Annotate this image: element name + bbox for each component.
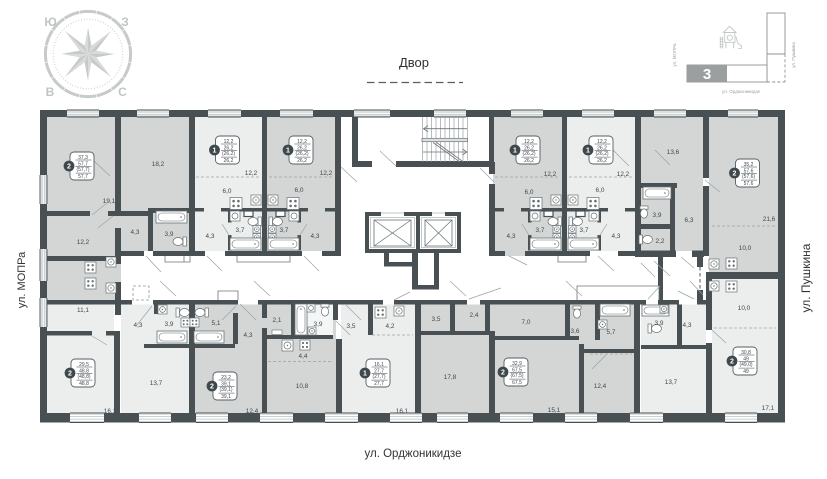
svg-text:(27,7): (27,7) bbox=[372, 374, 385, 380]
svg-text:12,4: 12,4 bbox=[246, 408, 259, 415]
svg-text:12,2: 12,2 bbox=[320, 170, 333, 177]
svg-text:4,3: 4,3 bbox=[244, 332, 253, 339]
svg-text:(67,5): (67,5) bbox=[510, 373, 523, 379]
svg-text:10,8: 10,8 bbox=[296, 383, 309, 390]
svg-text:17,1: 17,1 bbox=[762, 405, 775, 412]
svg-text:6,0: 6,0 bbox=[223, 188, 232, 195]
svg-text:13,6: 13,6 bbox=[667, 149, 680, 156]
svg-text:Ю: Ю bbox=[44, 15, 56, 29]
svg-text:10,0: 10,0 bbox=[739, 245, 752, 252]
svg-text:3,7: 3,7 bbox=[280, 227, 289, 234]
svg-text:4,3: 4,3 bbox=[311, 233, 320, 240]
svg-text:10,0: 10,0 bbox=[738, 305, 751, 312]
svg-text:1: 1 bbox=[286, 147, 290, 154]
svg-text:2: 2 bbox=[501, 369, 505, 376]
svg-text:13,7: 13,7 bbox=[665, 379, 678, 386]
svg-text:(26,2): (26,2) bbox=[595, 151, 608, 157]
svg-text:3: 3 bbox=[703, 66, 711, 83]
svg-text:3,9: 3,9 bbox=[165, 321, 174, 328]
svg-text:12,2: 12,2 bbox=[245, 170, 258, 177]
svg-text:2: 2 bbox=[733, 170, 737, 177]
svg-text:ул. МОПРа: ул. МОПРа bbox=[672, 43, 677, 67]
svg-text:4,3: 4,3 bbox=[507, 233, 516, 240]
svg-text:16,1: 16,1 bbox=[396, 408, 409, 415]
svg-text:26,2: 26,2 bbox=[224, 158, 234, 164]
svg-text:3,7: 3,7 bbox=[580, 227, 589, 234]
svg-text:(26,2): (26,2) bbox=[222, 151, 235, 157]
svg-text:ул. Орджоникидзе: ул. Орджоникидзе bbox=[722, 89, 760, 94]
svg-text:26,2: 26,2 bbox=[297, 158, 307, 164]
svg-text:3,9: 3,9 bbox=[655, 320, 664, 327]
svg-text:6,0: 6,0 bbox=[596, 187, 605, 194]
svg-text:2,1: 2,1 bbox=[273, 317, 282, 324]
svg-text:3,5: 3,5 bbox=[347, 323, 356, 330]
svg-text:3,5: 3,5 bbox=[432, 316, 441, 323]
svg-text:39,1: 39,1 bbox=[221, 394, 231, 400]
svg-text:6,3: 6,3 bbox=[685, 217, 694, 224]
svg-text:5,7: 5,7 bbox=[607, 329, 616, 336]
svg-text:(49,0): (49,0) bbox=[739, 362, 752, 368]
svg-text:2,4: 2,4 bbox=[470, 312, 479, 319]
svg-text:Двор: Двор bbox=[399, 55, 429, 70]
svg-text:(57,7): (57,7) bbox=[76, 167, 89, 173]
svg-text:4,3: 4,3 bbox=[134, 322, 143, 329]
svg-text:13,7: 13,7 bbox=[150, 380, 163, 387]
svg-text:6,0: 6,0 bbox=[525, 189, 534, 196]
svg-text:2,2: 2,2 bbox=[656, 238, 665, 245]
svg-text:1: 1 bbox=[363, 370, 367, 377]
svg-text:1: 1 bbox=[586, 147, 590, 154]
svg-text:3,7: 3,7 bbox=[236, 227, 245, 234]
svg-text:4,3: 4,3 bbox=[131, 229, 140, 236]
svg-text:18,2: 18,2 bbox=[152, 161, 165, 168]
svg-text:12,4: 12,4 bbox=[594, 383, 607, 390]
svg-text:С: С bbox=[118, 85, 127, 99]
svg-text:21,6: 21,6 bbox=[763, 216, 776, 223]
svg-text:11,1: 11,1 bbox=[77, 307, 89, 314]
svg-text:7,0: 7,0 bbox=[522, 319, 531, 326]
svg-text:27,7: 27,7 bbox=[374, 381, 384, 387]
svg-text:4,3: 4,3 bbox=[612, 233, 621, 240]
svg-text:2: 2 bbox=[730, 358, 734, 365]
svg-text:4,4: 4,4 bbox=[299, 353, 308, 360]
svg-text:26,2: 26,2 bbox=[597, 158, 607, 164]
svg-text:З: З bbox=[121, 15, 129, 29]
svg-text:3,9: 3,9 bbox=[165, 231, 174, 238]
svg-text:6,0: 6,0 bbox=[295, 187, 304, 194]
svg-text:2: 2 bbox=[67, 163, 71, 170]
svg-text:16,1: 16,1 bbox=[104, 408, 117, 415]
svg-text:57,7: 57,7 bbox=[78, 174, 88, 180]
svg-text:12,2: 12,2 bbox=[77, 239, 90, 246]
svg-text:(39,1): (39,1) bbox=[219, 387, 232, 393]
svg-text:15,1: 15,1 bbox=[548, 407, 561, 414]
svg-text:57,6: 57,6 bbox=[744, 181, 754, 187]
svg-text:2: 2 bbox=[210, 383, 214, 390]
svg-text:ул. Пушкина: ул. Пушкина bbox=[791, 42, 796, 68]
svg-text:В: В bbox=[46, 85, 55, 99]
svg-text:1: 1 bbox=[213, 147, 217, 154]
svg-text:(26,2): (26,2) bbox=[522, 151, 535, 157]
svg-text:12,2: 12,2 bbox=[617, 171, 630, 178]
svg-text:17,8: 17,8 bbox=[444, 374, 457, 381]
svg-text:3,9: 3,9 bbox=[653, 212, 662, 219]
svg-text:3,7: 3,7 bbox=[536, 227, 545, 234]
svg-text:(26,2): (26,2) bbox=[295, 151, 308, 157]
svg-text:4,3: 4,3 bbox=[206, 233, 215, 240]
svg-text:(48,8): (48,8) bbox=[77, 374, 90, 380]
svg-text:1: 1 bbox=[513, 147, 517, 154]
svg-text:4,3: 4,3 bbox=[683, 322, 692, 329]
svg-text:26,2: 26,2 bbox=[524, 158, 534, 164]
svg-text:5,1: 5,1 bbox=[212, 320, 221, 327]
svg-text:4,2: 4,2 bbox=[386, 323, 395, 330]
svg-text:48,8: 48,8 bbox=[79, 381, 89, 387]
svg-text:2: 2 bbox=[68, 370, 72, 377]
svg-text:ул. Пушкина: ул. Пушкина bbox=[799, 243, 813, 312]
svg-text:19,1: 19,1 bbox=[103, 198, 116, 205]
svg-text:(57,6): (57,6) bbox=[742, 174, 755, 180]
svg-text:ул. МОПРа: ул. МОПРа bbox=[16, 251, 28, 308]
svg-text:3,6: 3,6 bbox=[571, 328, 580, 335]
svg-text:3,9: 3,9 bbox=[314, 321, 323, 328]
svg-text:49: 49 bbox=[743, 369, 749, 375]
svg-text:67,5: 67,5 bbox=[512, 380, 522, 386]
svg-text:12,2: 12,2 bbox=[544, 171, 557, 178]
svg-text:ул. Орджоникидзе: ул. Орджоникидзе bbox=[365, 448, 462, 460]
